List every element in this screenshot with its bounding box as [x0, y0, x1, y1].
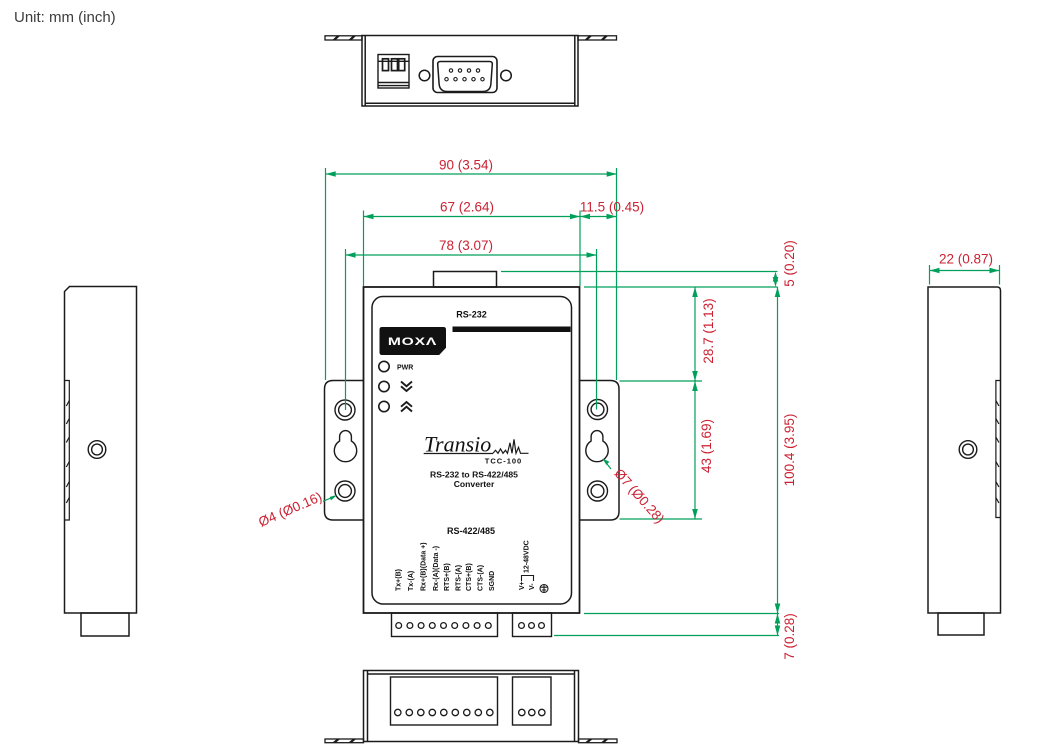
svg-text:V-: V-	[529, 583, 536, 590]
svg-text:V+: V+	[519, 581, 526, 590]
svg-text:TCC-100: TCC-100	[485, 457, 522, 466]
svg-text:28.7 (1.13): 28.7 (1.13)	[701, 298, 716, 363]
svg-text:Tx-(A): Tx-(A)	[408, 571, 415, 591]
svg-text:43 (1.69): 43 (1.69)	[699, 419, 714, 473]
svg-text:PWR: PWR	[397, 365, 413, 372]
svg-text:Converter: Converter	[454, 479, 495, 489]
svg-text:RS-232: RS-232	[456, 310, 487, 320]
svg-text:Rx+(B)(Data +): Rx+(B)(Data +)	[421, 542, 428, 591]
svg-text:90 (3.54): 90 (3.54)	[439, 158, 493, 173]
svg-text:RS-422/485: RS-422/485	[447, 526, 495, 536]
svg-text:100.4 (3.95): 100.4 (3.95)	[782, 414, 797, 487]
svg-text:7 (0.28): 7 (0.28)	[782, 613, 797, 660]
svg-text:MOXΛ: MOXΛ	[388, 335, 437, 347]
svg-text:CTS+(B): CTS+(B)	[466, 563, 473, 591]
svg-text:12-48VDC: 12-48VDC	[524, 540, 531, 573]
svg-text:11.5 (0.45): 11.5 (0.45)	[580, 200, 644, 215]
svg-text:5 (0.20): 5 (0.20)	[782, 240, 797, 287]
svg-text:CTS-(A): CTS-(A)	[478, 565, 485, 591]
svg-text:RTS+(B): RTS+(B)	[444, 563, 451, 591]
svg-text:67 (2.64): 67 (2.64)	[440, 200, 494, 215]
svg-text:RTS-(A): RTS-(A)	[456, 565, 463, 591]
svg-text:SGND: SGND	[489, 571, 496, 591]
svg-text:78 (3.07): 78 (3.07)	[439, 238, 493, 253]
svg-text:Unit: mm (inch): Unit: mm (inch)	[14, 9, 116, 26]
svg-text:Tx+(B): Tx+(B)	[396, 569, 403, 591]
svg-text:RS-232 to RS-422/485: RS-232 to RS-422/485	[430, 470, 518, 480]
svg-text:Transio: Transio	[424, 432, 491, 457]
svg-text:Rx-(A)(Data -): Rx-(A)(Data -)	[433, 546, 440, 591]
svg-text:22 (0.87): 22 (0.87)	[939, 252, 993, 267]
